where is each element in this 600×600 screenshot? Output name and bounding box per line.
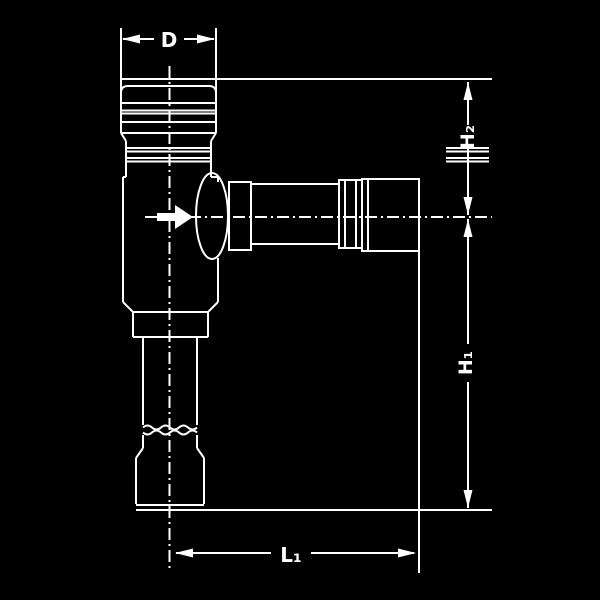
dimension-label-h1: H₁: [455, 351, 477, 375]
technical-drawing-canvas: D H₂ H₁ L₁: [0, 0, 600, 600]
flush-valve-dimension-drawing: D H₂ H₁ L₁: [0, 0, 600, 600]
dimension-label-l1: L₁: [280, 543, 302, 567]
dimension-label-h2: H₂: [457, 125, 479, 149]
dimension-label-d: D: [161, 28, 178, 52]
